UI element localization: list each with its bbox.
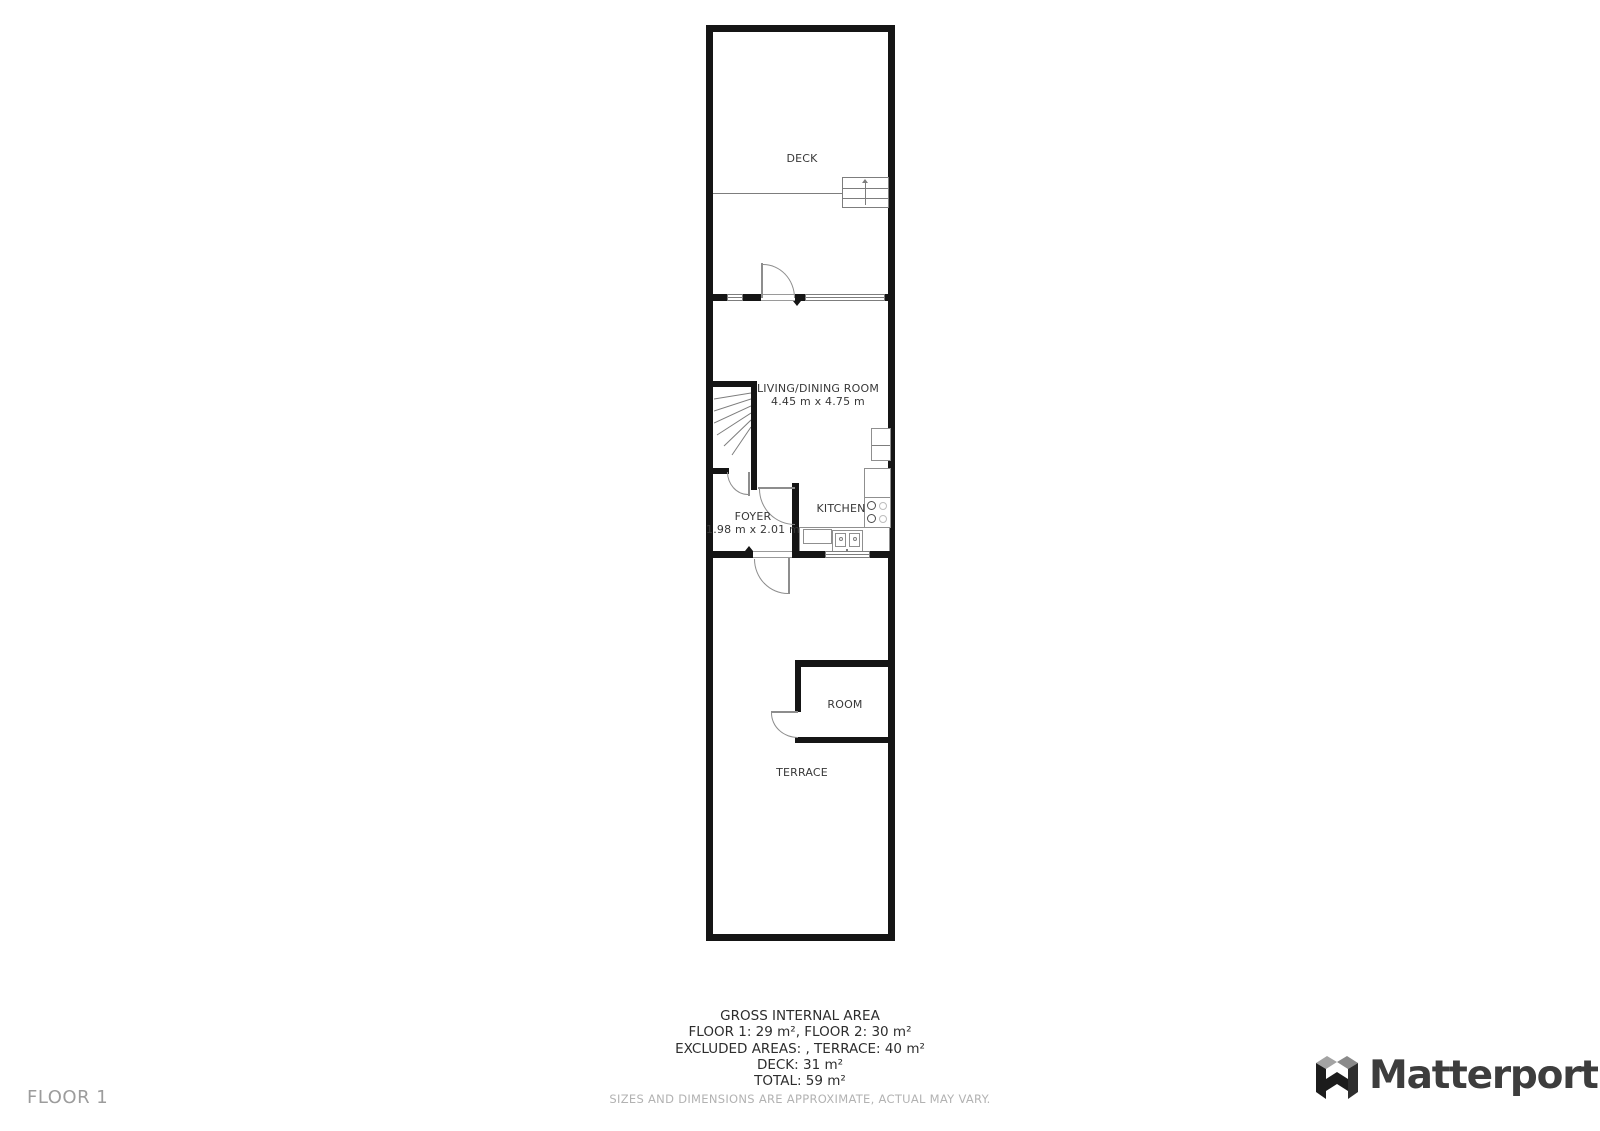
burner (879, 502, 887, 510)
living-dining-name: LIVING/DINING ROOM (757, 382, 879, 395)
burner (879, 515, 887, 523)
deck-edge-line (713, 193, 843, 194)
wall-segment (706, 551, 753, 558)
wall-segment (706, 468, 729, 474)
kitchen-counter (864, 468, 891, 498)
wall-segment (795, 660, 895, 667)
matterport-wordmark: Matterport (1369, 1056, 1598, 1095)
staircase (714, 387, 751, 467)
foyer-label: FOYER 1.98 m x 2.01 m (706, 510, 800, 536)
door-direction-marker (793, 301, 801, 306)
deck-label: DECK (786, 152, 817, 165)
terrace-label: TERRACE (776, 766, 828, 779)
window (805, 294, 885, 301)
burner (867, 514, 876, 523)
room-label: ROOM (827, 698, 862, 711)
deck-stairs (842, 177, 889, 208)
matterport-logo-icon (1314, 1051, 1360, 1099)
door-swing-arc (771, 713, 798, 738)
sink-drain (853, 537, 857, 541)
dishwasher (803, 529, 832, 544)
matterport-logo: Matterport (1314, 1051, 1598, 1099)
kitchen-label: KITCHEN (816, 502, 865, 515)
floor-plan-page: DECK LIVING/DINING ROOM 4.45 m x 4.75 m … (0, 0, 1600, 1131)
door-direction-marker (745, 546, 753, 551)
fridge (871, 428, 891, 461)
floor-indicator: FLOOR 1 (27, 1087, 108, 1108)
door-swing-arc (754, 559, 788, 594)
wall-segment (706, 25, 713, 941)
door-leaf (788, 558, 790, 594)
wall-segment (795, 294, 805, 301)
foyer-name: FOYER (706, 510, 800, 523)
wall-segment (706, 25, 895, 32)
wall-segment (795, 660, 801, 712)
living-dining-label: LIVING/DINING ROOM 4.45 m x 4.75 m (757, 382, 879, 408)
foyer-dimensions: 1.98 m x 2.01 m (706, 523, 800, 536)
door-opening (753, 551, 792, 558)
door-swing-arc (763, 264, 795, 298)
sink-drain (839, 537, 843, 541)
wall-segment (743, 294, 761, 301)
stair-direction-line (865, 182, 866, 205)
door-swing-arc (727, 472, 748, 495)
window (727, 294, 743, 301)
wall-segment (706, 934, 895, 941)
wall-segment (870, 551, 895, 558)
up-arrow-icon (862, 179, 868, 183)
door-leaf (748, 472, 750, 496)
gross-internal-area-title: GROSS INTERNAL AREA (0, 1008, 1600, 1024)
wall-segment (885, 294, 895, 301)
fridge-divider-line (872, 445, 890, 446)
wall-segment (792, 551, 825, 558)
wall-segment (706, 294, 727, 301)
window (825, 551, 870, 558)
area-line-floors: FLOOR 1: 29 m², FLOOR 2: 30 m² (0, 1024, 1600, 1040)
living-dining-dimensions: 4.45 m x 4.75 m (757, 395, 879, 408)
burner (867, 501, 876, 510)
wall-segment (795, 737, 895, 743)
